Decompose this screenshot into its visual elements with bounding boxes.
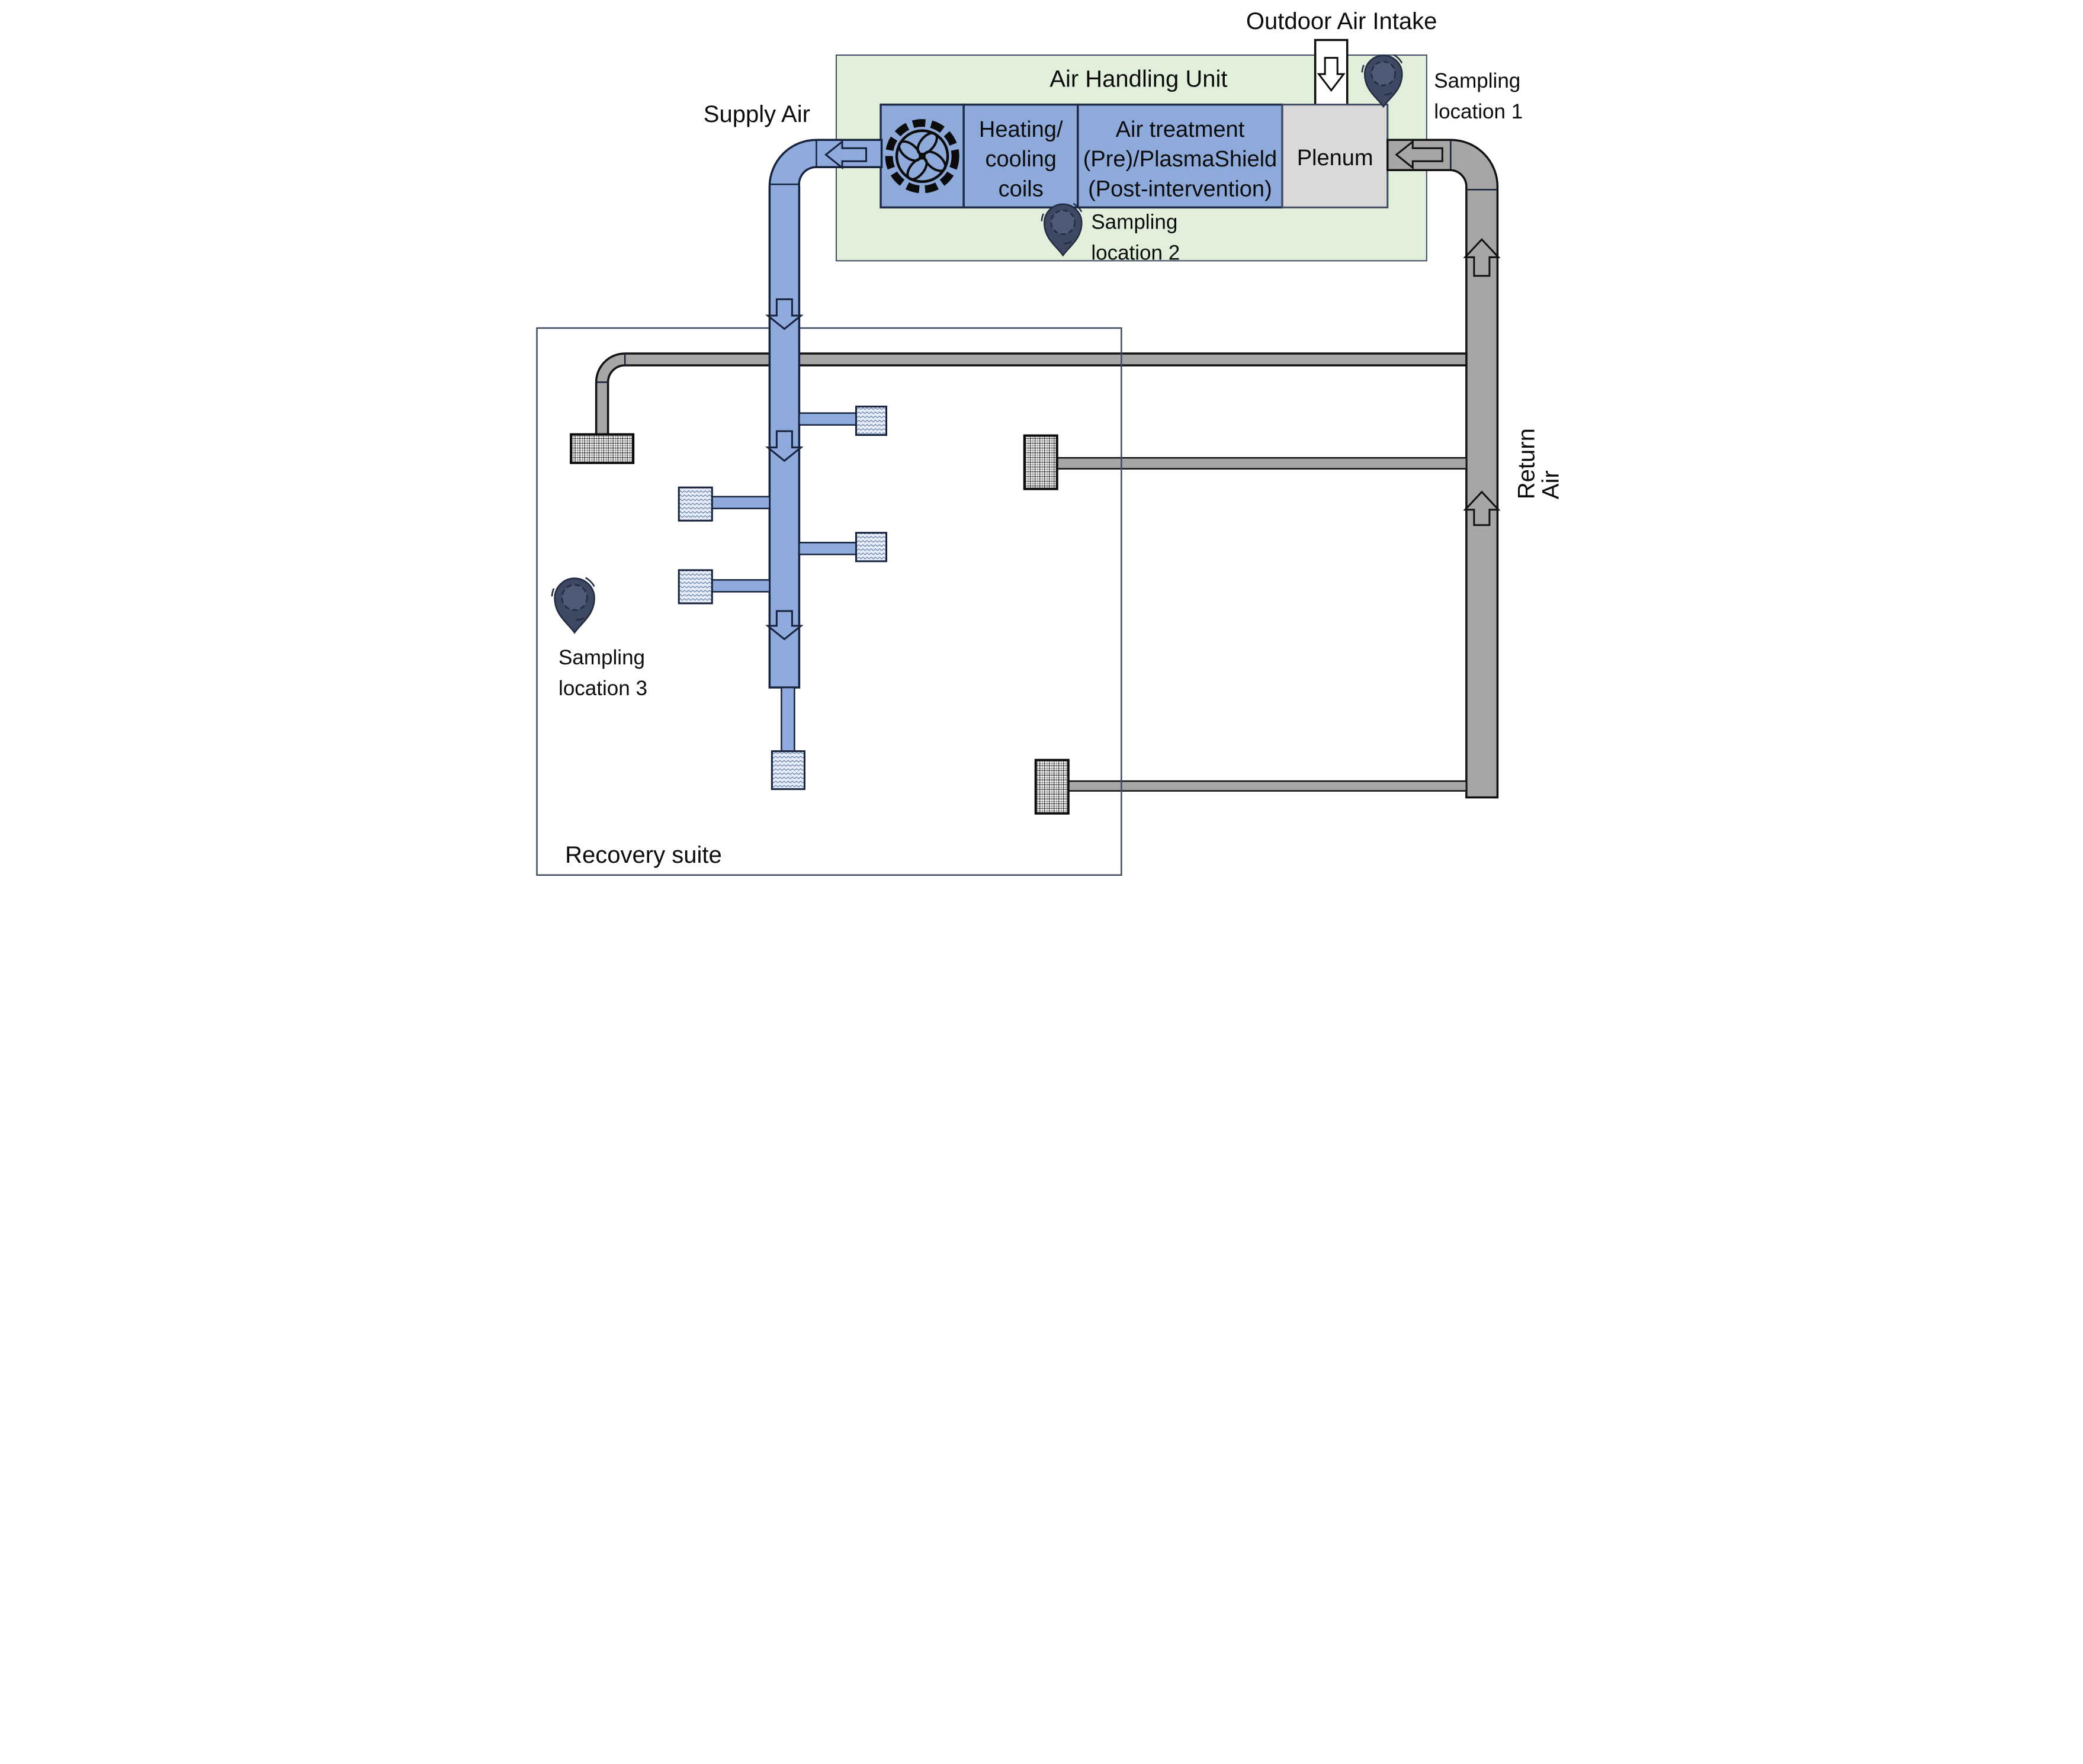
svg-text:Air: Air [1538,470,1563,499]
supply-diffuser-bottom [772,751,804,789]
supply-branch-left-1 [712,497,769,509]
ahu-title: Air Handling Unit [1049,66,1227,92]
svg-text:Return: Return [1513,428,1539,499]
sampling-location-1-label: Sampling location 1 [1434,69,1523,123]
svg-text:Sampling: Sampling [1091,210,1177,233]
supply-branch-bottom [781,687,794,753]
svg-text:coils: coils [998,176,1043,201]
sampling-pin-3 [543,565,606,632]
supply-branch-right-2 [799,542,856,554]
svg-text:(Pre)/PlasmaShield: (Pre)/PlasmaShield [1083,147,1276,172]
supply-diffuser-right-2 [856,533,886,561]
svg-text:Sampling: Sampling [1434,69,1520,92]
return-branch-duct-upper [1057,458,1466,469]
supply-air-label: Supply Air [703,101,810,127]
diagram-stage: Outdoor Air Intake Air Handling Unit Sup… [521,0,1563,883]
return-air-label: Return Air [1513,428,1563,499]
svg-text:location 3: location 3 [559,677,647,700]
sampling-location-3-label: Sampling location 3 [559,646,647,700]
svg-text:location 1: location 1 [1434,100,1523,123]
supply-branch-left-2 [712,580,769,592]
svg-text:Heating/: Heating/ [978,117,1063,142]
ceiling-return-duct [596,354,1466,435]
svg-text:cooling: cooling [985,147,1056,172]
return-grille-upper-right [1024,436,1057,489]
recovery-suite-label: Recovery suite [565,842,722,868]
outdoor-air-intake-duct [1315,40,1347,107]
return-branch-duct-lower [1068,781,1466,791]
supply-diffuser-left-2 [679,570,712,603]
svg-text:Air treatment: Air treatment [1115,117,1244,142]
supply-diffuser-right-1 [856,407,886,435]
recovery-suite-box [537,328,1121,875]
outdoor-air-intake-label: Outdoor Air Intake [1246,8,1437,34]
return-grille-left [571,435,633,463]
hvac-schematic: Outdoor Air Intake Air Handling Unit Sup… [521,0,1563,883]
return-grille-lower-right [1035,760,1068,814]
supply-diffuser-left-1 [679,487,712,520]
svg-text:Sampling: Sampling [559,646,645,669]
svg-text:location 2: location 2 [1091,241,1180,264]
supply-branch-right-1 [799,413,856,425]
plenum-label: Plenum [1296,146,1373,171]
svg-text:(Post-intervention): (Post-intervention) [1088,176,1272,201]
